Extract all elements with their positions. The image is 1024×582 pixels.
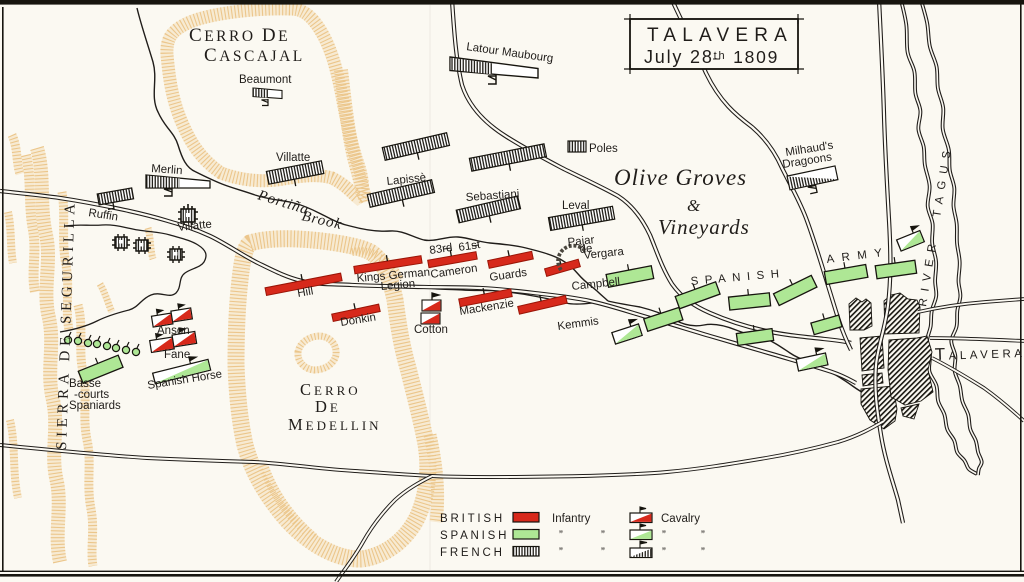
svg-text:”: ” [601,530,605,542]
svg-text:”: ” [559,547,563,559]
svg-text:Spaniards: Spaniards [69,400,121,412]
svg-text:Vineyards: Vineyards [658,215,750,239]
svg-text:”: ” [662,547,666,559]
svg-text:Cotton: Cotton [414,324,448,336]
svg-text:Olive Groves: Olive Groves [614,165,747,190]
svg-text:”: ” [601,547,605,559]
svg-text:Beaumont: Beaumont [239,74,292,86]
svg-text:Fane: Fane [164,349,190,361]
svg-text:”: ” [559,530,563,542]
svg-text:July 28th 1809: July 28th 1809 [644,47,779,67]
svg-text:SPANISH: SPANISH [440,530,509,542]
svg-text:BRITISH: BRITISH [440,513,505,525]
svg-text:MEDELLIN: MEDELLIN [288,415,382,434]
svg-text:Cavalry: Cavalry [661,513,700,525]
svg-text:FRENCH: FRENCH [440,547,505,559]
svg-text:CERRO DE: CERRO DE [189,25,290,46]
svg-text:DE: DE [315,397,341,416]
svg-text:Infantry: Infantry [552,513,591,525]
svg-text:Anson: Anson [157,325,190,337]
svg-text:Leval: Leval [562,200,590,212]
svg-text:&: & [687,196,701,215]
svg-text:”: ” [701,547,705,559]
svg-text:”: ” [662,530,666,542]
svg-text:CERRO: CERRO [300,380,361,399]
svg-text:Merlin: Merlin [151,163,183,177]
svg-text:”: ” [701,530,705,542]
svg-text:Poles: Poles [589,143,618,155]
svg-text:CASCAJAL: CASCAJAL [204,45,305,66]
svg-text:TALAVERA: TALAVERA [647,25,793,46]
svg-text:Villatte: Villatte [276,152,310,164]
